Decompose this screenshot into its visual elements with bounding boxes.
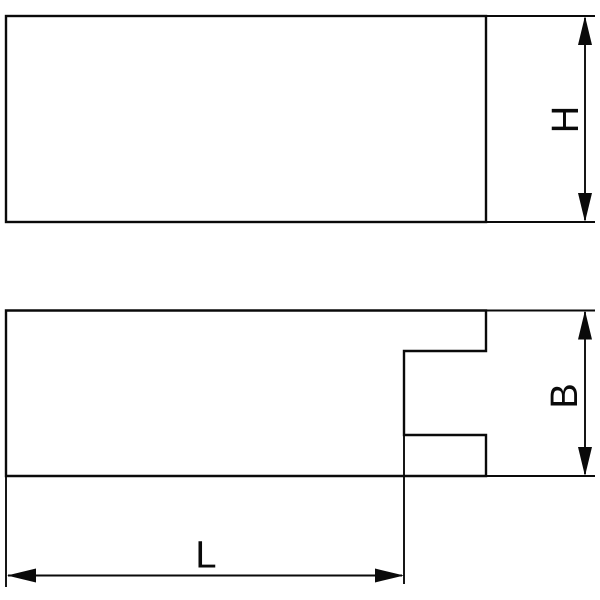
svg-text:L: L xyxy=(195,535,216,577)
svg-text:B: B xyxy=(544,383,586,408)
svg-text:H: H xyxy=(545,106,587,133)
